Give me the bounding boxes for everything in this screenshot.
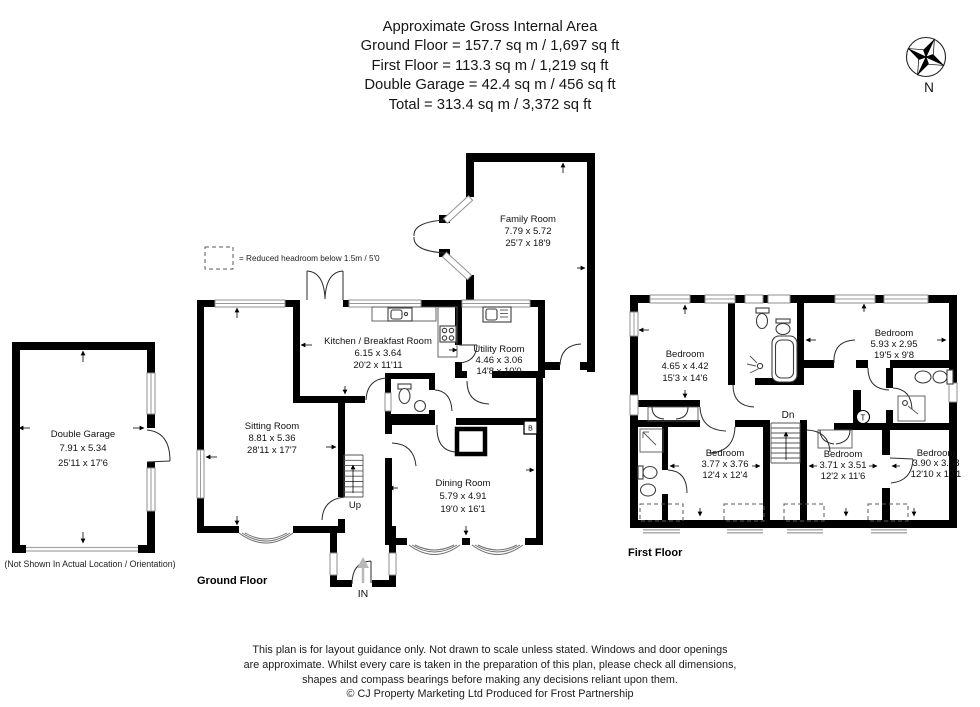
disclaimer-line: are approximate. Whilst every care is ta… xyxy=(0,658,980,673)
first-floor-plan: T Dn Bedroom 4.65 x 4.42 xyxy=(630,295,961,533)
tank-symbol: T xyxy=(857,411,870,424)
toilet-icon xyxy=(756,308,769,329)
room-name: Bedroom xyxy=(706,448,745,459)
bedroom3-label: Bedroom 3.77 x 3.76 12'4 x 12'4 xyxy=(701,448,748,481)
room-size-metric: 8.81 x 5.36 xyxy=(248,433,295,444)
room-size-imperial: 15'3 x 14'6 xyxy=(662,373,707,384)
garage-room-label: Double Garage 7.91 x 5.34 25'11 x 17'6 xyxy=(51,429,115,469)
bow-windows xyxy=(239,533,523,555)
room-name: Family Room xyxy=(500,214,556,225)
dining-room-label: Dining Room 5.79 x 4.91 19'0 x 16'1 xyxy=(436,478,491,515)
disclaimer-line: shapes and compass bearings before makin… xyxy=(0,673,980,688)
room-name: Bedroom xyxy=(875,328,914,339)
utility-sink-icon xyxy=(483,307,511,322)
wc-sink-icon xyxy=(415,401,426,412)
ensuite-right-fixtures xyxy=(898,370,953,421)
room-size-imperial: 12'4 x 12'4 xyxy=(702,470,747,481)
room-name: Sitting Room xyxy=(245,421,299,432)
sink-icon xyxy=(915,371,931,383)
legend: = Reduced headroom below 1.5m / 5'0 xyxy=(205,247,380,269)
room-size-metric: 7.79 x 5.72 xyxy=(504,226,551,237)
room-size-metric: 7.91 x 5.34 xyxy=(59,443,106,454)
room-size-metric: 4.65 x 4.42 xyxy=(661,361,708,372)
room-size-imperial: 12'2 x 11'6 xyxy=(821,471,866,482)
room-size-metric: 3.77 x 3.76 xyxy=(701,459,748,470)
stairs-down-label: Dn xyxy=(782,410,795,421)
room-size-imperial: 20'2 x 11'11 xyxy=(353,360,402,371)
wardrobes xyxy=(648,407,852,448)
garage-note: (Not Shown In Actual Location / Orientat… xyxy=(4,559,175,569)
shower-cubicle-icon xyxy=(640,429,663,452)
room-name: Kitchen / Breakfast Room xyxy=(324,336,432,347)
room-name: Bedroom xyxy=(824,449,863,460)
family-room-label: Family Room 7.79 x 5.72 25'7 x 18'9 xyxy=(500,214,556,249)
room-size-metric: 4.46 x 3.06 xyxy=(475,355,522,366)
room-size-imperial: 12'10 x 10'1 xyxy=(911,469,962,480)
bedroom4-label: Bedroom 3.71 x 3.51 12'2 x 11'6 xyxy=(819,449,866,482)
stairs-down xyxy=(771,423,800,463)
chimney-breast xyxy=(457,429,485,454)
entrance-arrow-icon xyxy=(357,557,369,583)
wc-toilet-icon xyxy=(398,384,411,404)
toilet-icon xyxy=(933,370,953,384)
room-size-imperial: 19'5 x 9'8 xyxy=(874,350,914,361)
bathtub-icon xyxy=(772,336,797,382)
kitchen-sink-icon xyxy=(388,308,412,321)
room-name: Utility Room xyxy=(473,344,524,355)
bathroom-fixtures xyxy=(747,308,797,382)
room-size-metric: 5.79 x 4.91 xyxy=(439,491,486,502)
garage-plan: Double Garage 7.91 x 5.34 25'11 x 17'6 (… xyxy=(4,342,175,569)
dormer-windows xyxy=(643,530,907,533)
copyright-line: © CJ Property Marketing Ltd Produced for… xyxy=(0,687,980,702)
kitchen-label: Kitchen / Breakfast Room 6.15 x 3.64 20'… xyxy=(324,336,432,371)
room-size-imperial: 19'0 x 16'1 xyxy=(440,504,485,515)
ground-floor-windows xyxy=(197,196,530,575)
room-size-imperial: 14'8 x 10'0 xyxy=(476,366,521,377)
floorplan-page: Approximate Gross Internal Area Ground F… xyxy=(0,0,980,707)
room-name: Bedroom xyxy=(666,349,705,360)
room-size-metric: 3.71 x 3.51 xyxy=(819,460,866,471)
ground-floor-plan: Up B IN Family Room 7.79 x 5.72 25'7 x 1… xyxy=(197,153,595,600)
utility-room-label: Utility Room 4.46 x 3.06 14'8 x 10'0 xyxy=(473,344,524,377)
toilet-icon xyxy=(638,466,657,479)
sitting-room-label: Sitting Room 8.81 x 5.36 28'11 x 17'7 xyxy=(245,421,299,456)
bedroom2-label: Bedroom 5.93 x 2.95 19'5 x 9'8 xyxy=(870,328,917,361)
stairs-up-label: Up xyxy=(349,500,361,511)
room-name: Double Garage xyxy=(51,429,115,440)
room-size-imperial: 28'11 x 17'7 xyxy=(247,445,297,456)
shower-cubicle-icon xyxy=(898,396,925,421)
garage-door-arc xyxy=(147,430,170,461)
footer-disclaimer: This plan is for layout guidance only. N… xyxy=(0,643,980,702)
room-size-imperial: 25'7 x 18'9 xyxy=(505,238,550,249)
bedroom1-label: Bedroom 4.65 x 4.42 15'3 x 14'6 xyxy=(661,349,708,384)
disclaimer-line: This plan is for layout guidance only. N… xyxy=(0,643,980,658)
room-size-metric: 6.15 x 3.64 xyxy=(354,348,401,359)
room-size-metric: 5.93 x 2.95 xyxy=(870,339,917,350)
legend-text: = Reduced headroom below 1.5m / 5'0 xyxy=(239,254,380,263)
stove-icon xyxy=(440,326,456,342)
tank-label: T xyxy=(861,414,866,423)
reduced-headroom-areas xyxy=(640,504,908,521)
first-floor-title: First Floor xyxy=(628,547,683,559)
shower-head-icon xyxy=(747,356,763,373)
reduced-headroom-swatch xyxy=(205,247,233,269)
entrance-label: IN xyxy=(358,588,369,600)
sink-icon xyxy=(776,319,790,335)
stairs-up xyxy=(344,455,363,497)
room-size-metric: 3.90 x 3.08 xyxy=(912,458,959,469)
floor-plan-drawing: N = Reduced headroom below 1.5m / 5'0 xyxy=(0,0,980,707)
room-size-imperial: 25'11 x 17'6 xyxy=(58,458,108,469)
room-name: Dining Room xyxy=(436,478,491,489)
boiler-box: B xyxy=(524,421,537,434)
compass-north-label: N xyxy=(924,80,934,95)
ground-floor-title: Ground Floor xyxy=(197,575,268,587)
bedroom5-label: Bedroom 3.90 x 3.08 12'10 x 10'1 xyxy=(911,448,962,480)
ensuite-left-fixtures xyxy=(638,429,663,496)
sink-icon xyxy=(641,484,656,496)
compass-icon: N xyxy=(899,30,952,95)
boiler-label: B xyxy=(528,426,533,433)
